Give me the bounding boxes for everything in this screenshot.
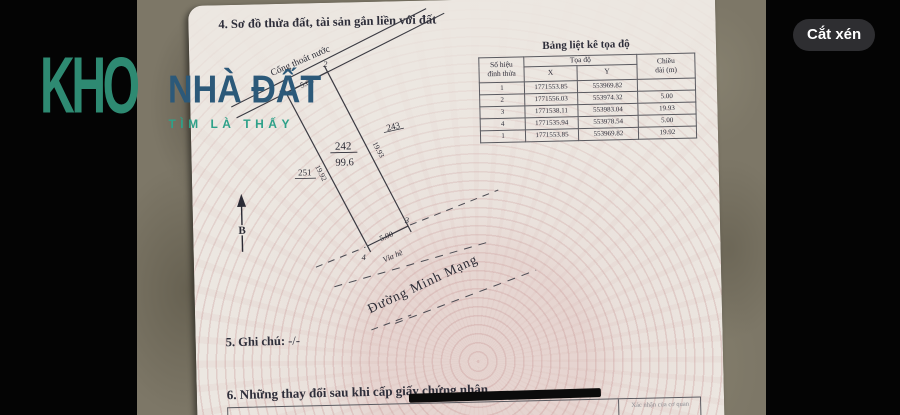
crop-button[interactable]: Cắt xén [793,19,875,51]
logo-kho-text: KHO [40,46,137,126]
neighbor-left-label: 251 [298,167,312,177]
parcel-number-label: 242 [335,140,352,152]
frontage-dash-right [409,190,499,225]
frontage-dash-left [316,247,366,267]
right-length-label: 19.93 [371,140,387,159]
north-arrow-icon: B [237,194,247,252]
logo-nhadat-text: NHÀ ĐẤT [168,70,321,109]
logo-slogan-text: TÌM LÀ THẤY [168,117,334,131]
logo-right-block: NHÀ ĐẤT TÌM LÀ THẤY [168,70,334,131]
neighbor-right-label: 243 [385,120,401,133]
changes-table-divider [618,399,620,415]
road-dash-3 [371,315,411,330]
kho-nha-dat-logo: KHO NHÀ ĐẤT TÌM LÀ THẤY [40,46,335,131]
bottom-length-label: 5.00 [378,229,394,243]
section5-value: -/- [288,334,300,348]
sidewalk-label: Vỉa hè [382,248,405,265]
parcel-area-label: 99.6 [335,157,354,168]
screenshot-root: 4. Sơ đồ thửa đất, tài sản gắn liền với … [0,0,900,415]
vertex-3-label: 3 [404,215,409,225]
changes-table-header: Xác nhận của cơ quan [622,401,698,410]
vertex-4-label: 4 [362,252,367,262]
left-length-label: 19.92 [313,163,329,182]
north-label: B [238,225,246,237]
section5-title: 5. Ghi chú: -/- [225,334,300,351]
